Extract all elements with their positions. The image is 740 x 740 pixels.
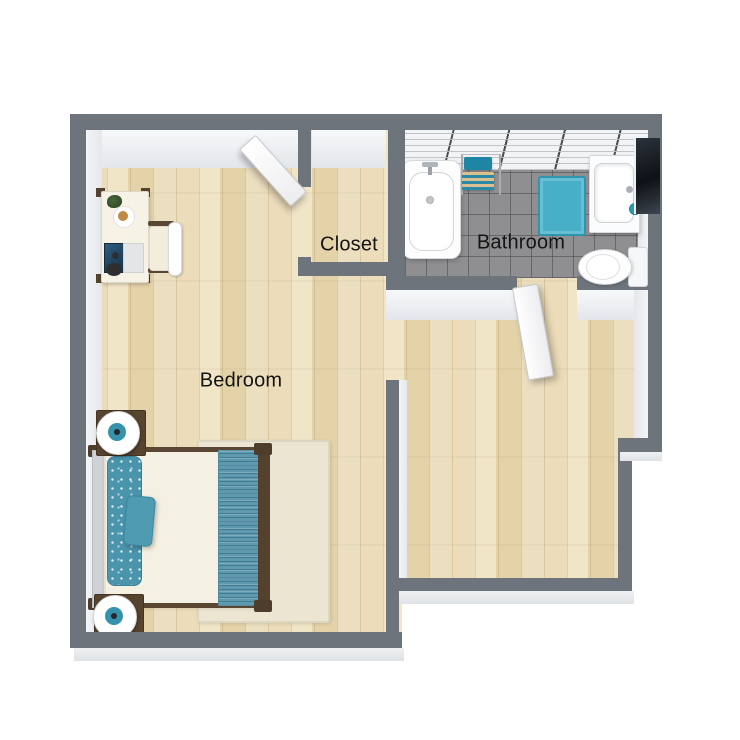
closet-label: Closet: [320, 234, 378, 257]
wall-outer-face: [74, 648, 404, 661]
accent-pillow: [123, 495, 156, 547]
bed-runner: [218, 450, 260, 606]
floor-cutout: [402, 592, 652, 740]
wall-left: [70, 114, 86, 648]
wall-right-lower: [618, 438, 632, 592]
towel-striped: [462, 172, 494, 190]
wall-face: [634, 290, 648, 440]
desk-lamp-base: [106, 263, 122, 276]
wall-outer-face: [399, 591, 634, 604]
bedroom-label: Bedroom: [200, 370, 283, 393]
wall-closet-left-upper: [298, 130, 311, 187]
wall-bath-bottom-left: [386, 276, 517, 290]
wall-partition: [386, 380, 399, 632]
wall-outer-face: [620, 452, 662, 461]
wall-bedroom-bottom: [70, 632, 402, 648]
desk-lamp-icon: [112, 252, 119, 259]
wall-mirror: [634, 138, 660, 214]
towel-teal: [464, 157, 492, 170]
table-lamp-icon: [96, 411, 140, 455]
tub-drain: [426, 196, 434, 204]
wall-face: [399, 380, 407, 578]
wall-hall-bottom: [386, 578, 632, 592]
wall-face: [312, 130, 386, 168]
plate-food: [118, 211, 128, 221]
bath-mat: [538, 176, 586, 236]
bathroom-label: Bathroom: [477, 232, 565, 255]
laptop-keyboard: [123, 243, 144, 273]
sink-faucet-icon: [626, 186, 633, 193]
wall-top: [70, 114, 662, 130]
wall-closet-bath-divider: [388, 130, 405, 276]
footboard: [258, 450, 270, 606]
wall-face: [386, 290, 517, 320]
floor-plan: Bedroom Closet Bathroom: [0, 0, 740, 740]
